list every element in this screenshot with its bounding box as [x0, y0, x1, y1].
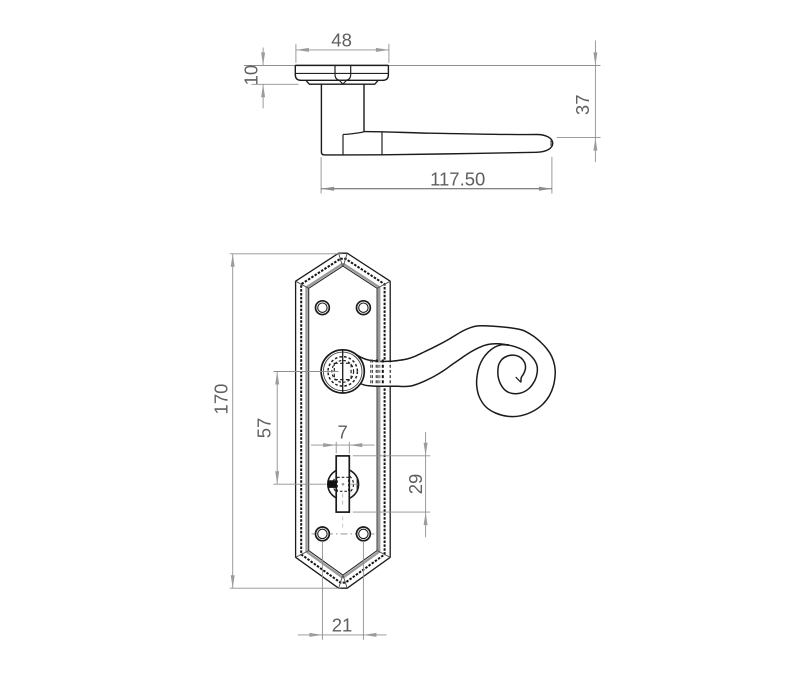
- svg-text:57: 57: [254, 418, 275, 439]
- svg-text:48: 48: [331, 29, 352, 50]
- svg-text:10: 10: [241, 65, 262, 86]
- svg-text:170: 170: [211, 384, 232, 415]
- svg-text:37: 37: [572, 95, 593, 116]
- svg-text:7: 7: [337, 421, 347, 442]
- svg-text:21: 21: [332, 614, 353, 635]
- svg-text:29: 29: [405, 474, 426, 495]
- svg-text:117.50: 117.50: [430, 169, 485, 190]
